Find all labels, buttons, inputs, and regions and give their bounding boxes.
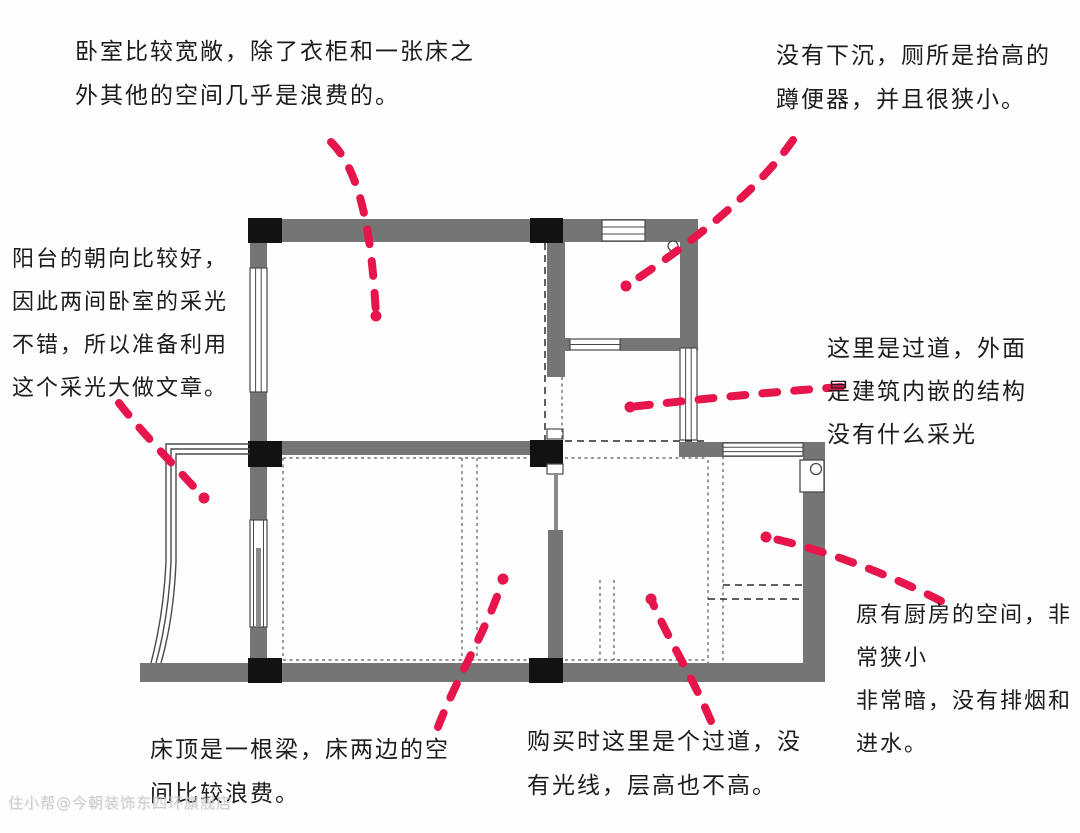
door-balcony-leaf bbox=[256, 548, 261, 627]
pillar-top-middle bbox=[530, 218, 563, 243]
wall-bedroom-bath-divider bbox=[547, 240, 565, 377]
note-passage: 购买时这里是个过道，没 有光线，层高也不高。 bbox=[527, 720, 802, 808]
note-line: 非常暗，没有排烟和 bbox=[856, 680, 1072, 723]
window-bath-top bbox=[602, 220, 645, 241]
note-line: 这个采光大做文章。 bbox=[12, 367, 228, 410]
note-balcony: 阳台的朝向比较好， 因此两间卧室的采光 不错，所以准备利用 这个采光大做文章。 bbox=[12, 238, 228, 410]
arrow-tip bbox=[621, 281, 632, 292]
arrow-tip bbox=[646, 594, 657, 605]
wall-lower-middle bbox=[548, 530, 563, 663]
wall-left-lower-b bbox=[250, 627, 267, 658]
walls bbox=[140, 219, 825, 682]
door-jamb bbox=[547, 429, 563, 439]
window-kitchen bbox=[723, 443, 803, 456]
pillar-mid-middle bbox=[530, 440, 563, 467]
note-line: 卧室比较宽敞，除了衣柜和一张床之 bbox=[75, 30, 475, 74]
wall-left-mid bbox=[250, 392, 267, 441]
windows-doors bbox=[250, 220, 803, 627]
note-bedroom: 卧室比较宽敞，除了衣柜和一张床之 外其他的空间几乎是浪费的。 bbox=[75, 30, 475, 118]
note-line: 常狭小 bbox=[856, 637, 1072, 680]
watermark: 住小帮@今朝装饰东四环旗舰店 bbox=[8, 792, 232, 813]
door-jamb bbox=[547, 464, 563, 474]
note-line: 这里是过道，外面 bbox=[827, 328, 1027, 371]
note-line: 阳台的朝向比较好， bbox=[12, 238, 228, 281]
arrow-to-balcony bbox=[119, 403, 204, 498]
note-line: 原有厨房的空间，非 bbox=[856, 594, 1072, 637]
arrow-tip bbox=[761, 532, 772, 543]
window-hallway bbox=[680, 348, 697, 440]
balcony-enclosure bbox=[151, 444, 250, 663]
kitchen-sink-drain-icon bbox=[811, 464, 822, 475]
arrow-tip bbox=[498, 574, 509, 585]
wall-bottom bbox=[140, 663, 825, 682]
balcony-line bbox=[156, 449, 250, 663]
balcony-line bbox=[151, 444, 250, 663]
note-line: 没有下沉，厕所是抬高的 bbox=[776, 34, 1051, 78]
annotated-floorplan-page: 卧室比较宽敞，除了衣柜和一张床之 外其他的空间几乎是浪费的。 没有下沉，厕所是抬… bbox=[0, 0, 1080, 833]
note-line: 床顶是一根梁，床两边的空 bbox=[150, 728, 450, 772]
wall-left-lower-a bbox=[250, 467, 267, 520]
note-line: 没有什么采光 bbox=[827, 414, 1027, 457]
arrow-tip bbox=[199, 493, 210, 504]
pillar-bottom-middle bbox=[529, 658, 563, 683]
note-line: 外其他的空间几乎是浪费的。 bbox=[75, 74, 475, 118]
arrow-to-kitchen bbox=[766, 537, 941, 601]
note-line: 是建筑内嵌的结构 bbox=[827, 371, 1027, 414]
pillar-mid-left bbox=[248, 441, 282, 467]
note-line: 不错，所以准备利用 bbox=[12, 324, 228, 367]
window-left bbox=[250, 268, 267, 392]
wall-middle bbox=[268, 441, 548, 455]
note-kitchen: 原有厨房的空间，非 常狭小 非常暗，没有排烟和 进水。 bbox=[856, 594, 1072, 766]
arrow-to-corridor bbox=[630, 387, 841, 407]
arrow-tip bbox=[371, 311, 382, 322]
note-corridor: 这里是过道，外面 是建筑内嵌的结构 没有什么采光 bbox=[827, 328, 1027, 457]
wall-left-upper bbox=[250, 242, 267, 268]
note-toilet: 没有下沉，厕所是抬高的 蹲便器，并且很狭小。 bbox=[776, 34, 1051, 122]
balcony-line bbox=[161, 454, 250, 663]
pillar-bottom-left bbox=[248, 658, 282, 683]
arrow-to-toilet bbox=[626, 140, 793, 286]
wall-bath-bottom-left bbox=[562, 338, 570, 351]
note-line: 蹲便器，并且很狭小。 bbox=[776, 78, 1051, 122]
pillar-top-left bbox=[248, 218, 282, 243]
note-line: 因此两间卧室的采光 bbox=[12, 281, 228, 324]
note-line: 进水。 bbox=[856, 723, 1072, 766]
note-line: 有光线，层高也不高。 bbox=[527, 764, 802, 808]
arrow-tip bbox=[625, 402, 636, 413]
arrow-to-bed-beam bbox=[438, 579, 503, 727]
door-leaf-lower-room bbox=[554, 474, 558, 530]
note-line: 购买时这里是个过道，没 bbox=[527, 720, 802, 764]
